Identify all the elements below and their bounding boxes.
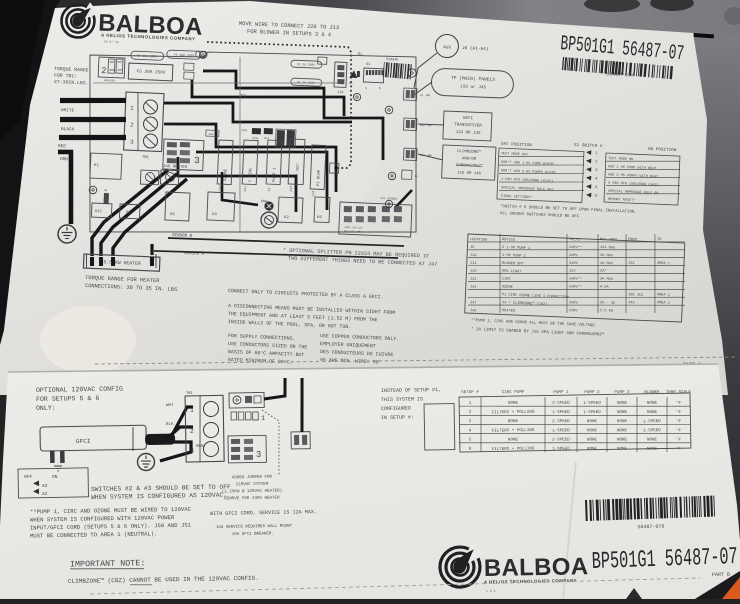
svg-text:2: 2 xyxy=(190,428,194,435)
svg-text:EL: EL xyxy=(358,53,364,57)
svg-text:T1: T1 xyxy=(240,94,246,100)
svg-text:(1.25KW @ 120VAC HEATER): (1.25KW @ 120VAC HEATER) xyxy=(222,488,282,494)
svg-text:1 O A: 1 O A xyxy=(486,589,496,593)
svg-text:3: 3 xyxy=(130,138,134,145)
svg-text:J46: J46 xyxy=(470,309,477,313)
svg-text:FOR TB1:: FOR TB1: xyxy=(54,73,77,80)
svg-text:OZONE: OZONE xyxy=(224,168,229,181)
svg-text:MED JMP: MED JMP xyxy=(420,124,432,128)
svg-text:WHITE: WHITE xyxy=(61,108,75,114)
svg-text:NONE: NONE xyxy=(647,402,658,406)
svg-text:PR3: PR3 xyxy=(284,122,289,125)
svg-text:PUMP 1: PUMP 1 xyxy=(273,167,278,182)
svg-text:ADDED JUMPER FOR: ADDED JUMPER FOR xyxy=(232,476,273,481)
svg-text:56: 56 xyxy=(104,189,108,192)
svg-text:BLOWER: BLOWER xyxy=(644,391,660,395)
svg-text:NONE: NONE xyxy=(587,438,598,442)
svg-text:J19: J19 xyxy=(337,91,344,95)
svg-text:JA6: JA6 xyxy=(208,133,214,136)
svg-text:J47: J47 xyxy=(290,186,294,192)
svg-text:A2: A2 xyxy=(42,491,48,497)
svg-text:RV + CBZ*: RV + CBZ* xyxy=(295,162,301,182)
svg-text:120VAC SYSTEM: 120VAC SYSTEM xyxy=(236,483,269,488)
svg-text:TO: TO xyxy=(657,238,661,242)
svg-text:J4A: J4A xyxy=(241,128,247,132)
svg-text:J24: J24 xyxy=(219,186,223,192)
svg-text:CLIMBZONE™: CLIMBZONE™ xyxy=(457,149,482,155)
svg-text:56487-07#: 56487-07# xyxy=(606,71,634,78)
svg-text:F5 15A 250V: F5 15A 250V xyxy=(137,54,158,59)
svg-text:NONE: NONE xyxy=(617,448,628,452)
svg-text:°F: °F xyxy=(676,428,682,433)
svg-text:CIRC PUMP: CIRC PUMP xyxy=(502,391,525,395)
svg-text:1: 1 xyxy=(130,105,134,112)
svg-text:CONFIGURED: CONFIGURED xyxy=(381,405,411,412)
svg-text:MAX JMP: MAX JMP xyxy=(420,154,432,158)
svg-text:°F: °F xyxy=(676,447,682,452)
svg-text:NONE: NONE xyxy=(617,429,628,433)
svg-text:K4: K4 xyxy=(212,213,218,217)
svg-text:BLACK: BLACK xyxy=(61,127,75,133)
svg-text:6: 6 xyxy=(379,87,381,90)
svg-text:PART B: PART B xyxy=(712,572,730,578)
svg-text:THIS SYSTEM IS: THIS SYSTEM IS xyxy=(381,396,423,403)
svg-text:GFCI: GFCI xyxy=(76,438,91,445)
svg-text:J49: J49 xyxy=(628,301,635,305)
svg-text:UL: UL xyxy=(349,82,353,86)
svg-text:56 07 78: 56 07 78 xyxy=(104,40,119,44)
svg-text:°F: °F xyxy=(676,437,682,442)
svg-text:1: 1 xyxy=(190,407,194,414)
svg-text:°F: °F xyxy=(676,410,682,415)
svg-text:2-SPEED: 2-SPEED xyxy=(552,420,570,424)
svg-text:IMPORTANT NOTE:: IMPORTANT NOTE: xyxy=(70,558,146,569)
svg-text:20A GFCI BREAKER.: 20A GFCI BREAKER. xyxy=(232,532,274,537)
svg-text:2: 2 xyxy=(101,66,107,76)
svg-text:BLK: BLK xyxy=(166,423,174,427)
svg-text:TB1: TB1 xyxy=(142,156,150,160)
svg-text:3: 3 xyxy=(190,447,194,454)
svg-text:WHT: WHT xyxy=(166,404,174,408)
svg-text:NONE: NONE xyxy=(647,448,658,452)
svg-text:J21: J21 xyxy=(244,186,248,192)
svg-text:A1 JMP: A1 JMP xyxy=(420,94,431,97)
svg-text:3: 3 xyxy=(194,155,200,166)
svg-text:2: 2 xyxy=(130,122,134,129)
svg-text:NONE: NONE xyxy=(508,402,519,406)
svg-text:A3: A3 xyxy=(42,483,48,489)
svg-text:1-SPEED: 1-SPEED xyxy=(552,429,570,433)
svg-text:HEATER: HEATER xyxy=(502,309,516,314)
svg-text:NONE: NONE xyxy=(617,438,628,442)
svg-text:NONE: NONE xyxy=(508,438,519,442)
svg-text:5.5 KW: 5.5 KW xyxy=(600,309,614,314)
svg-text:FILTERS + POLLING: FILTERS + POLLING xyxy=(492,411,535,416)
svg-text:PUMP 1: PUMP 1 xyxy=(553,391,569,395)
svg-text:2-SPEED: 2-SPEED xyxy=(552,402,570,406)
svg-text:2A*: 2A* xyxy=(600,269,607,274)
svg-text:AND/OR: AND/OR xyxy=(462,156,477,162)
svg-text:K1: K1 xyxy=(94,164,100,168)
svg-text:OFF: OFF xyxy=(24,474,33,480)
svg-text:K5: K5 xyxy=(170,213,176,217)
svg-text:J5: J5 xyxy=(414,175,418,178)
svg-text:NONE: NONE xyxy=(617,420,628,424)
svg-text:F3 20A 250V: F3 20A 250V xyxy=(174,53,195,58)
svg-text:SETUP #: SETUP # xyxy=(461,391,479,395)
svg-text:NONE: NONE xyxy=(508,420,519,424)
svg-text:RED: RED xyxy=(58,144,66,149)
svg-text:K6: K6 xyxy=(317,216,323,220)
svg-text:12V: 12V xyxy=(569,270,576,274)
svg-text:1: 1 xyxy=(365,87,367,90)
svg-text:NONE: NONE xyxy=(587,420,598,424)
svg-text:NONE: NONE xyxy=(617,411,628,415)
svg-text:IN SETUP #:: IN SETUP #: xyxy=(381,414,414,421)
svg-text:3: 3 xyxy=(256,450,262,460)
svg-text:1: 1 xyxy=(261,415,265,423)
svg-text:519946: 519946 xyxy=(386,58,398,63)
svg-text:NONE: NONE xyxy=(647,411,658,415)
svg-text:240V: 240V xyxy=(569,309,579,313)
svg-text:K12: K12 xyxy=(95,210,103,214)
svg-text:WIFI: WIFI xyxy=(463,117,474,121)
svg-text:CPO3: CPO3 xyxy=(252,137,259,140)
svg-text:NONE: NONE xyxy=(587,448,598,452)
svg-text:1-SPEED: 1-SPEED xyxy=(583,411,601,415)
svg-text:K2: K2 xyxy=(284,216,290,220)
svg-text:P2 BLWR: P2 BLWR xyxy=(317,169,322,186)
svg-text:1-SPEED: 1-SPEED xyxy=(643,420,661,424)
svg-text:J14: J14 xyxy=(312,191,316,197)
svg-text:°F: °F xyxy=(676,419,682,424)
svg-text:NONE: NONE xyxy=(617,402,628,406)
svg-text:AUX: AUX xyxy=(443,45,451,50)
svg-text:J8: J8 xyxy=(470,246,474,250)
svg-text:C CIRC: C CIRC xyxy=(249,167,254,182)
svg-text:GRN: GRN xyxy=(60,157,68,162)
svg-text:FOR SETUPS 5 & 6: FOR SETUPS 5 & 6 xyxy=(36,395,99,403)
svg-text:ONLY:: ONLY: xyxy=(36,405,56,412)
svg-text:°F: °F xyxy=(676,401,682,406)
svg-text:NONE: NONE xyxy=(587,429,598,433)
svg-text:J4: J4 xyxy=(268,188,272,192)
svg-text:INSTEAD OF SETUP #1,: INSTEAD OF SETUP #1, xyxy=(381,387,441,394)
svg-text:NONE: NONE xyxy=(647,438,658,442)
svg-text:UNFUSED: UNFUSED xyxy=(104,79,115,82)
svg-text:1-SPEED: 1-SPEED xyxy=(552,411,570,415)
svg-text:1-SPEED: 1-SPEED xyxy=(583,402,601,406)
svg-text:2-SPEED: 2-SPEED xyxy=(552,438,570,442)
svg-text:56487-079: 56487-079 xyxy=(637,524,664,530)
svg-text:FILTERS + POLLING: FILTERS + POLLING xyxy=(492,429,535,434)
svg-text:ON: ON xyxy=(52,474,58,480)
svg-text:FILTERS + POLLING: FILTERS + POLLING xyxy=(492,447,535,452)
svg-text:1-SPEED: 1-SPEED xyxy=(552,447,570,451)
svg-text:1-SPEED: 1-SPEED xyxy=(643,429,661,433)
